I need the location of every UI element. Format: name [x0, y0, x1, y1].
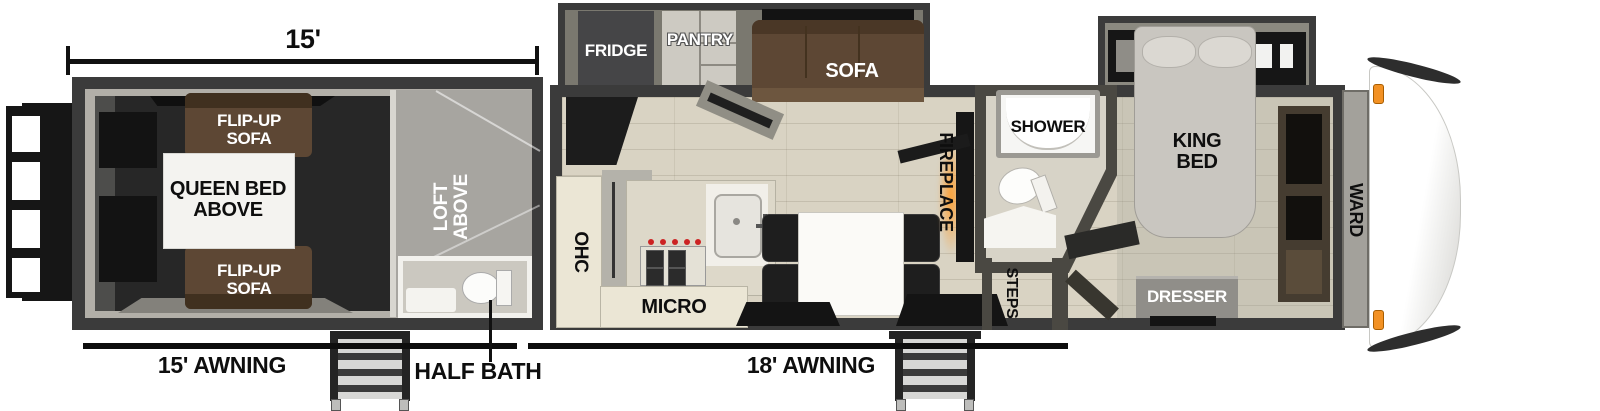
rear-ladder-rung [12, 162, 40, 200]
bedroom-window-left-pane [1116, 40, 1136, 72]
pantry-divider [699, 11, 701, 89]
rear-ladder-rung [12, 210, 40, 248]
shower-label: SHOWER [988, 118, 1108, 136]
dinette-table [798, 212, 904, 316]
step-foot [331, 399, 341, 411]
bedroom-window-right-pane [1256, 44, 1272, 68]
stove-knob [684, 239, 690, 245]
pantry-shelf [701, 64, 736, 66]
toilet-tank [496, 270, 512, 306]
upper-cabinet-slit [612, 182, 615, 278]
flip-up-sofa-top-backrest [185, 93, 312, 108]
queen-bed-above-label: QUEEN BED ABOVE [163, 179, 293, 220]
pantry-label: PANTRY [660, 31, 740, 49]
stove-burner [646, 268, 664, 286]
step-rail [967, 331, 975, 401]
stove-knob [660, 239, 666, 245]
floor-mat [736, 302, 840, 326]
ohc-label: OHC [568, 224, 590, 280]
front-cap [1369, 66, 1461, 348]
pillow [1198, 36, 1252, 68]
sink-basin [714, 194, 762, 258]
half-bath-vanity [406, 288, 456, 312]
ward-label: WARD [1345, 175, 1365, 245]
loft-above-label: LOFT ABOVE [432, 152, 472, 262]
flip-up-sofa-bottom-label: FLIP-UP SOFA [186, 262, 312, 297]
flip-up-sofa-top-label: FLIP-UP SOFA [186, 112, 312, 147]
awning-line-right [528, 343, 1068, 349]
dimension-label: 15' [68, 26, 538, 54]
step-bar [338, 353, 402, 360]
toilet-bowl [462, 272, 500, 304]
step-bar [889, 331, 981, 339]
step-bar [330, 331, 410, 339]
marker-light [1373, 84, 1384, 104]
awning-label-right: 18' AWNING [701, 354, 921, 378]
stove-knob [695, 239, 701, 245]
living-sofa-front [752, 88, 924, 102]
pillow [1142, 36, 1196, 68]
king-bed-label: KING BED [1142, 131, 1252, 172]
bedroom-window-right-pane [1280, 44, 1293, 68]
rv-floorplan-canvas: 15' [0, 0, 1600, 411]
cabinet-shelf [1286, 250, 1322, 294]
step-bar [338, 385, 402, 392]
living-sofa-back [752, 20, 924, 34]
dresser-label: DRESSER [1132, 288, 1242, 306]
sofa-window [762, 9, 914, 20]
micro-label: MICRO [614, 297, 734, 318]
step-foot [399, 399, 409, 411]
garage-window [99, 112, 157, 168]
rear-ladder-rung [12, 258, 40, 292]
half-bath-callout-line [489, 300, 492, 362]
stove-knob [648, 239, 654, 245]
dinette-chair [898, 214, 940, 262]
awning-label-left: 15' AWNING [112, 354, 332, 378]
stove-burner [668, 250, 686, 268]
garage-window [99, 196, 157, 282]
dresser-mat [1150, 316, 1216, 326]
rear-ladder-rung [12, 116, 40, 152]
steps-nook-wall [1052, 258, 1068, 330]
dimension-line [68, 59, 538, 64]
stove-knob [672, 239, 678, 245]
stove-burner [668, 268, 686, 286]
step-foot [964, 399, 974, 411]
step-foot [896, 399, 906, 411]
fireplace-label: FIREPLACE [935, 112, 955, 252]
sofa-label: SOFA [807, 61, 897, 82]
marker-light [1373, 310, 1384, 330]
fridge-label: FRIDGE [576, 42, 656, 60]
stove-burner [646, 250, 664, 268]
step-bar [903, 385, 967, 392]
cabinet-niche [1286, 114, 1322, 184]
cabinet-niche [1286, 196, 1322, 240]
half-bath-label: HALF BATH [378, 360, 578, 384]
sink-drain [733, 218, 740, 225]
steps-nook-wall [982, 258, 992, 330]
awning-line-left [83, 343, 517, 349]
steps-label: STEPS [1001, 255, 1019, 331]
